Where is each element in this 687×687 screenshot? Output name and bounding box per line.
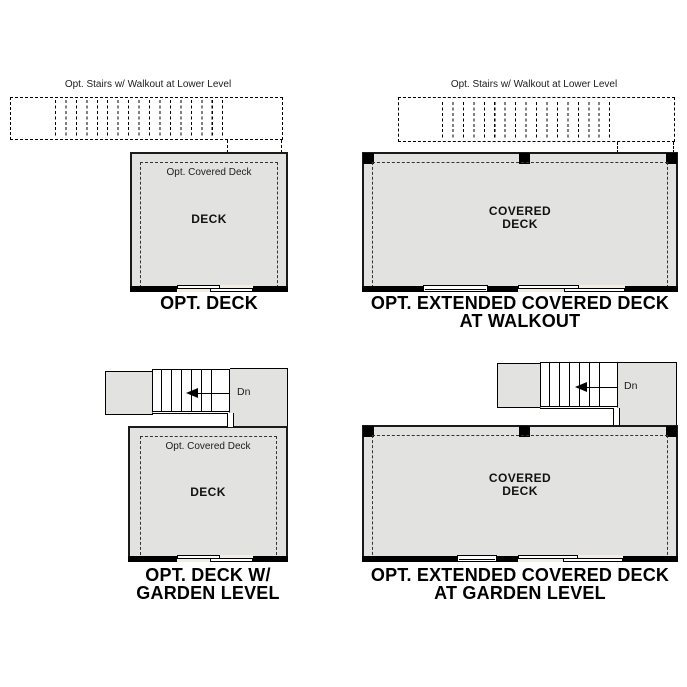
caption-line: GARDEN LEVEL bbox=[136, 585, 279, 603]
upper-walk-area bbox=[618, 362, 677, 425]
door-panel bbox=[563, 558, 623, 562]
stair-passage bbox=[227, 413, 234, 427]
wall-segment bbox=[623, 556, 678, 562]
caption-line: OPT. DECK W/ bbox=[136, 567, 279, 585]
door-panel bbox=[564, 288, 625, 292]
room-label: COVERED DECK bbox=[489, 205, 551, 231]
down-arrow-line bbox=[196, 393, 230, 394]
down-arrow-icon bbox=[186, 388, 198, 398]
figure-caption: OPT. EXTENDED COVERED DECK AT WALKOUT bbox=[371, 295, 669, 330]
stair-treads bbox=[442, 100, 613, 140]
down-arrow-line bbox=[585, 387, 618, 388]
floor-plan-sheet: Opt. Stairs w/ Walkout at Lower Level Op… bbox=[0, 0, 687, 687]
wall-segment bbox=[253, 556, 288, 562]
down-label: Dn bbox=[237, 386, 250, 398]
caption-line: OPT. DECK bbox=[160, 295, 258, 313]
room-label: DECK bbox=[190, 486, 226, 499]
figure-caption: OPT. DECK W/ GARDEN LEVEL bbox=[136, 567, 279, 602]
wall-segment bbox=[625, 286, 678, 292]
caption-line: OPT. EXTENDED COVERED DECK bbox=[371, 567, 669, 585]
figure-caption: OPT. EXTENDED COVERED DECK AT GARDEN LEV… bbox=[371, 567, 669, 602]
window-glass-line bbox=[459, 559, 495, 560]
stair-passage bbox=[613, 408, 620, 425]
sliding-door-opening bbox=[518, 555, 623, 562]
wall-segment bbox=[253, 286, 288, 292]
door-panel bbox=[210, 288, 253, 292]
wall-segment bbox=[362, 556, 457, 562]
wall-segment bbox=[362, 286, 423, 292]
window-glass-line bbox=[425, 289, 486, 290]
down-label: Dn bbox=[624, 380, 637, 392]
stairs-note: Opt. Stairs w/ Walkout at Lower Level bbox=[65, 79, 231, 90]
covered-deck-note: Opt. Covered Deck bbox=[166, 167, 251, 178]
stair-landing bbox=[105, 371, 153, 415]
caption-line: OPT. EXTENDED COVERED DECK bbox=[371, 295, 669, 313]
room-label: DECK bbox=[191, 213, 227, 226]
window-opening bbox=[457, 555, 497, 562]
stair-treads bbox=[55, 100, 223, 138]
covered-deck-note: Opt. Covered Deck bbox=[165, 441, 250, 452]
caption-line: AT GARDEN LEVEL bbox=[371, 585, 669, 603]
sliding-door-opening bbox=[177, 555, 253, 562]
caption-line: AT WALKOUT bbox=[371, 313, 669, 331]
sliding-door-opening bbox=[177, 285, 253, 292]
wall-segment bbox=[130, 286, 177, 292]
wall-segment bbox=[488, 286, 518, 292]
wall-segment bbox=[128, 556, 177, 562]
window-opening bbox=[423, 285, 488, 292]
stairs-note: Opt. Stairs w/ Walkout at Lower Level bbox=[451, 79, 617, 90]
down-arrow-icon bbox=[575, 382, 587, 392]
room-label-line: DECK bbox=[489, 485, 551, 498]
room-label: COVERED DECK bbox=[489, 472, 551, 498]
wall-segment bbox=[497, 556, 518, 562]
stair-landing bbox=[497, 363, 541, 408]
sliding-door-opening bbox=[518, 285, 625, 292]
figure-caption: OPT. DECK bbox=[160, 295, 258, 313]
room-label-line: DECK bbox=[489, 218, 551, 231]
door-panel bbox=[210, 558, 253, 562]
